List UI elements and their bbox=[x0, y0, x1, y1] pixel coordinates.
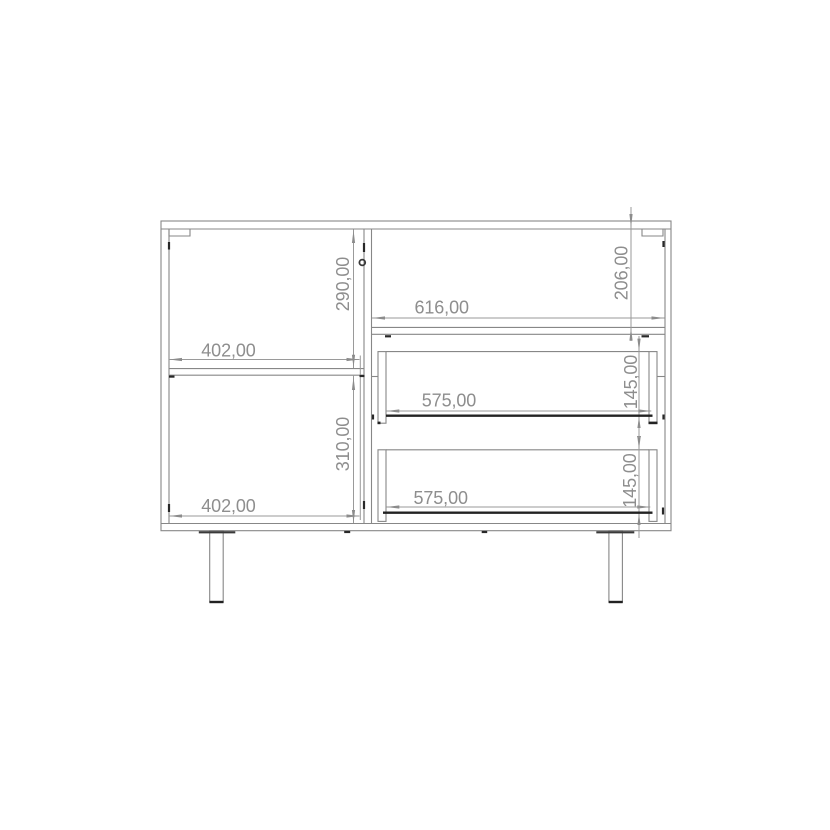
svg-text:145,00: 145,00 bbox=[620, 453, 640, 508]
svg-text:145,00: 145,00 bbox=[621, 355, 641, 410]
svg-text:290,00: 290,00 bbox=[333, 257, 353, 312]
svg-text:206,00: 206,00 bbox=[612, 246, 632, 301]
svg-text:310,00: 310,00 bbox=[333, 417, 353, 472]
svg-text:616,00: 616,00 bbox=[414, 298, 469, 318]
svg-text:402,00: 402,00 bbox=[201, 496, 256, 516]
svg-text:402,00: 402,00 bbox=[201, 341, 256, 361]
svg-text:575,00: 575,00 bbox=[422, 391, 477, 411]
svg-text:575,00: 575,00 bbox=[413, 488, 468, 508]
